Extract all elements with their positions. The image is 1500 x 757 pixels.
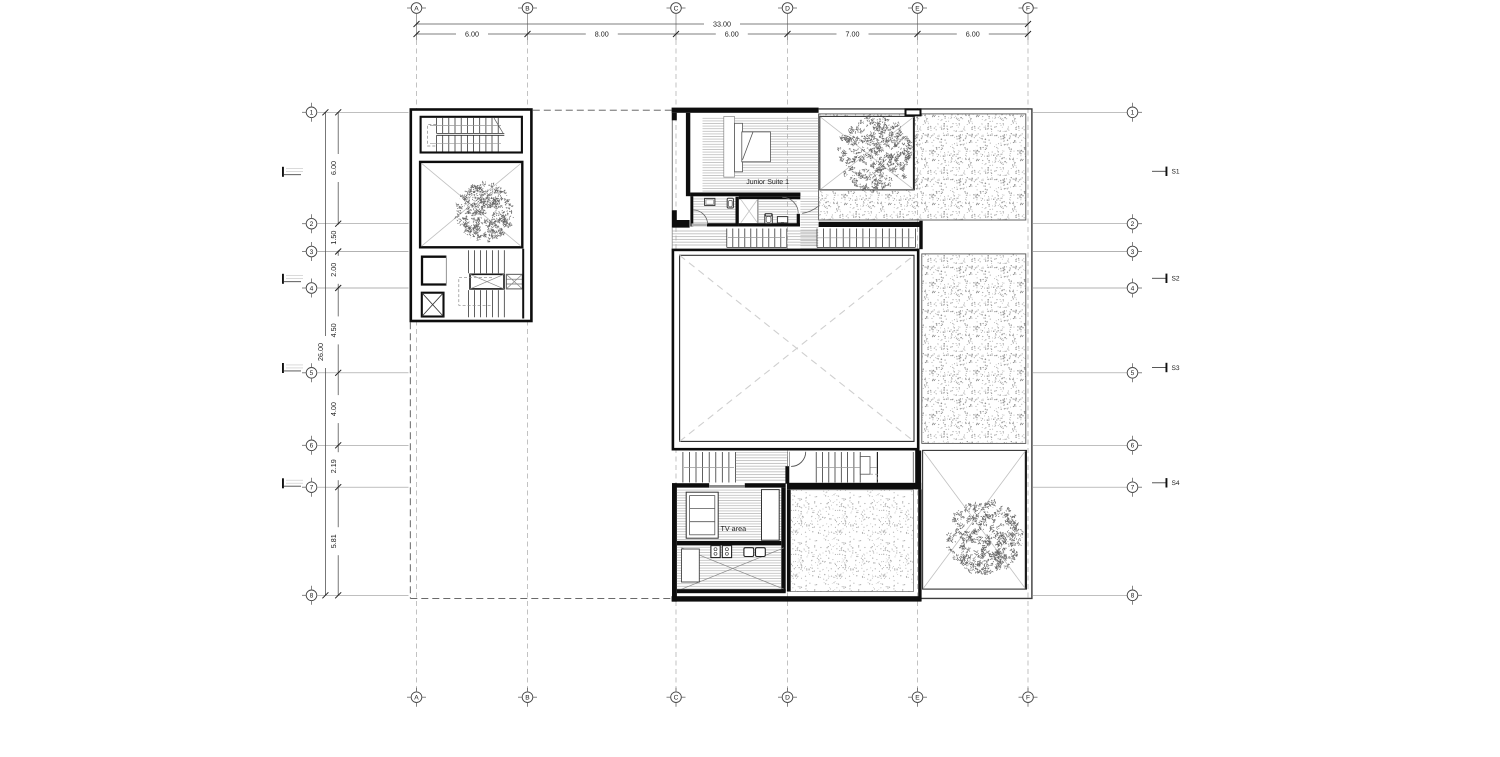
svg-text:3: 3 xyxy=(310,249,314,256)
svg-text:2: 2 xyxy=(1131,221,1135,228)
svg-text:7: 7 xyxy=(310,485,314,492)
svg-text:E: E xyxy=(915,695,920,702)
svg-text:S1: S1 xyxy=(1172,169,1180,176)
svg-text:A: A xyxy=(414,5,419,12)
svg-text:C: C xyxy=(674,5,679,12)
svg-text:1: 1 xyxy=(1131,110,1135,117)
svg-text:1: 1 xyxy=(310,110,314,117)
svg-text:1.50: 1.50 xyxy=(329,231,338,245)
svg-text:C: C xyxy=(674,695,679,702)
svg-text:Junior Suite 1: Junior Suite 1 xyxy=(746,178,789,186)
svg-text:B: B xyxy=(525,695,530,702)
svg-text:5: 5 xyxy=(1131,370,1135,377)
svg-text:F: F xyxy=(1026,695,1030,702)
svg-text:5: 5 xyxy=(310,370,314,377)
svg-text:8: 8 xyxy=(310,593,314,600)
svg-text:S2: S2 xyxy=(1172,276,1180,283)
svg-text:4.00: 4.00 xyxy=(329,402,338,416)
svg-text:S3: S3 xyxy=(1172,365,1180,372)
svg-text:6.00: 6.00 xyxy=(329,161,338,175)
svg-text:S4: S4 xyxy=(1172,480,1180,487)
svg-text:4: 4 xyxy=(310,285,314,292)
svg-text:2.00: 2.00 xyxy=(329,263,338,277)
svg-text:D: D xyxy=(785,695,790,702)
svg-text:A: A xyxy=(414,695,419,702)
svg-text:6: 6 xyxy=(310,443,314,450)
svg-text:2: 2 xyxy=(310,221,314,228)
svg-text:2.19: 2.19 xyxy=(329,459,338,473)
svg-text:D: D xyxy=(785,5,790,12)
svg-text:6.00: 6.00 xyxy=(966,30,980,39)
svg-text:7.00: 7.00 xyxy=(846,30,860,39)
svg-text:B: B xyxy=(525,5,530,12)
svg-text:3: 3 xyxy=(1131,249,1135,256)
svg-text:F: F xyxy=(1026,5,1030,12)
svg-text:8: 8 xyxy=(1131,593,1135,600)
svg-text:33.00: 33.00 xyxy=(713,20,731,29)
svg-text:8.00: 8.00 xyxy=(595,30,609,39)
svg-text:5.81: 5.81 xyxy=(329,534,338,548)
svg-text:TV area: TV area xyxy=(721,524,747,533)
svg-text:7: 7 xyxy=(1131,485,1135,492)
svg-text:4.50: 4.50 xyxy=(329,323,338,337)
svg-text:E: E xyxy=(915,5,920,12)
svg-text:6.00: 6.00 xyxy=(725,30,739,39)
svg-text:6.00: 6.00 xyxy=(465,30,479,39)
svg-text:4: 4 xyxy=(1131,285,1135,292)
svg-text:26.00: 26.00 xyxy=(316,343,325,361)
svg-text:6: 6 xyxy=(1131,443,1135,450)
